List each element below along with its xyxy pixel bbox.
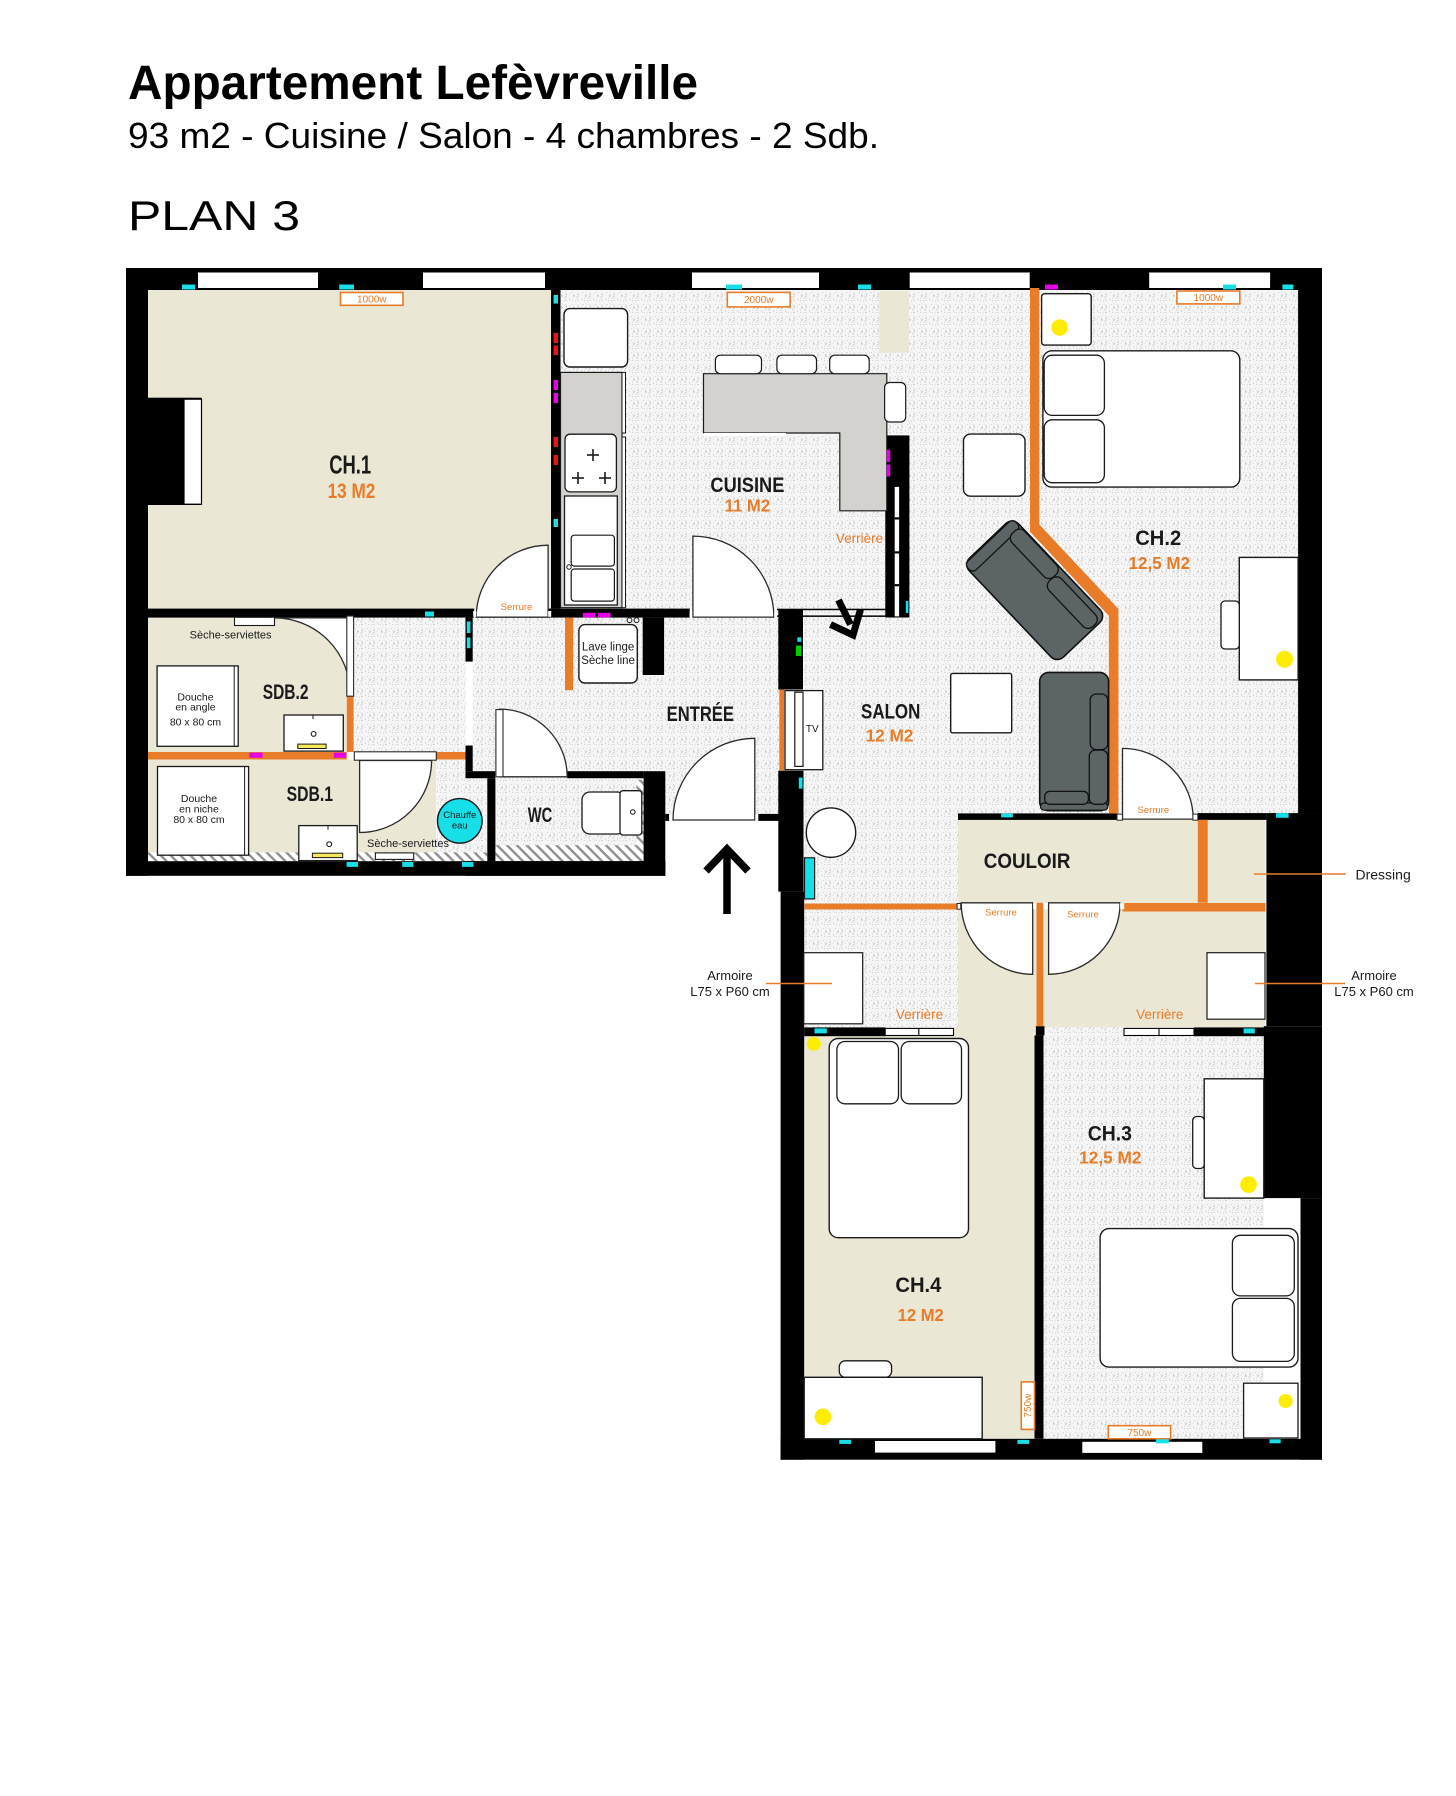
svg-text:SDB.1: SDB.1 (287, 783, 334, 806)
svg-text:Sèche-serviettes: Sèche-serviettes (190, 630, 272, 642)
svg-text:ENTRÉE: ENTRÉE (667, 703, 734, 726)
svg-text:CUISINE: CUISINE (710, 474, 784, 497)
svg-text:Serrure: Serrure (1067, 910, 1099, 921)
svg-text:12,5 M2: 12,5 M2 (1079, 1148, 1142, 1168)
svg-text:13 M2: 13 M2 (328, 480, 376, 503)
svg-text:1000w: 1000w (1194, 293, 1224, 304)
svg-text:93 m2 - Cuisine / Salon - 4 ch: 93 m2 - Cuisine / Salon - 4 chambres - 2… (128, 115, 879, 156)
svg-text:12 M2: 12 M2 (866, 726, 914, 746)
svg-text:Dressing: Dressing (1356, 867, 1411, 883)
svg-text:Lave linge: Lave linge (582, 642, 634, 654)
svg-text:PLAN 3: PLAN 3 (128, 192, 300, 239)
svg-text:L75 x P60 cm: L75 x P60 cm (1334, 984, 1414, 999)
svg-text:Serrure: Serrure (501, 602, 533, 613)
svg-text:CH.4: CH.4 (895, 1274, 941, 1297)
svg-text:eau: eau (452, 821, 468, 832)
svg-text:L75 x P60 cm: L75 x P60 cm (690, 984, 770, 999)
svg-text:WC: WC (528, 804, 553, 827)
svg-text:Serrure: Serrure (1137, 805, 1169, 816)
svg-text:Appartement Lefèvreville: Appartement Lefèvreville (128, 57, 698, 110)
svg-text:CH.2: CH.2 (1135, 527, 1181, 550)
svg-text:Armoire: Armoire (707, 968, 753, 983)
svg-text:TV: TV (806, 724, 819, 735)
svg-text:Verrière: Verrière (896, 1007, 943, 1022)
svg-text:2000w: 2000w (744, 295, 774, 306)
svg-text:SALON: SALON (861, 701, 920, 724)
svg-text:Verrière: Verrière (836, 531, 883, 546)
svg-text:CH.1: CH.1 (329, 450, 371, 480)
svg-text:750w: 750w (1023, 1393, 1034, 1418)
svg-text:Serrure: Serrure (985, 908, 1017, 919)
svg-text:en angle: en angle (175, 702, 215, 714)
svg-text:1000w: 1000w (357, 294, 387, 305)
svg-text:CH.3: CH.3 (1088, 1122, 1132, 1145)
svg-text:Sèche-serviettes: Sèche-serviettes (367, 838, 449, 850)
svg-text:11 M2: 11 M2 (725, 496, 771, 516)
svg-text:Sèche line: Sèche line (581, 655, 635, 667)
svg-text:750w: 750w (1127, 1428, 1152, 1439)
svg-text:Armoire: Armoire (1351, 968, 1397, 983)
svg-text:SDB.2: SDB.2 (263, 681, 309, 704)
svg-text:12,5 M2: 12,5 M2 (1129, 553, 1191, 573)
svg-text:Chauffe: Chauffe (443, 810, 476, 821)
svg-text:12 M2: 12 M2 (898, 1305, 944, 1325)
svg-text:80 x 80 cm: 80 x 80 cm (170, 717, 222, 729)
svg-text:COULOIR: COULOIR (984, 850, 1071, 873)
svg-text:Verrière: Verrière (1136, 1007, 1183, 1022)
svg-text:80 x 80 cm: 80 x 80 cm (173, 814, 225, 826)
